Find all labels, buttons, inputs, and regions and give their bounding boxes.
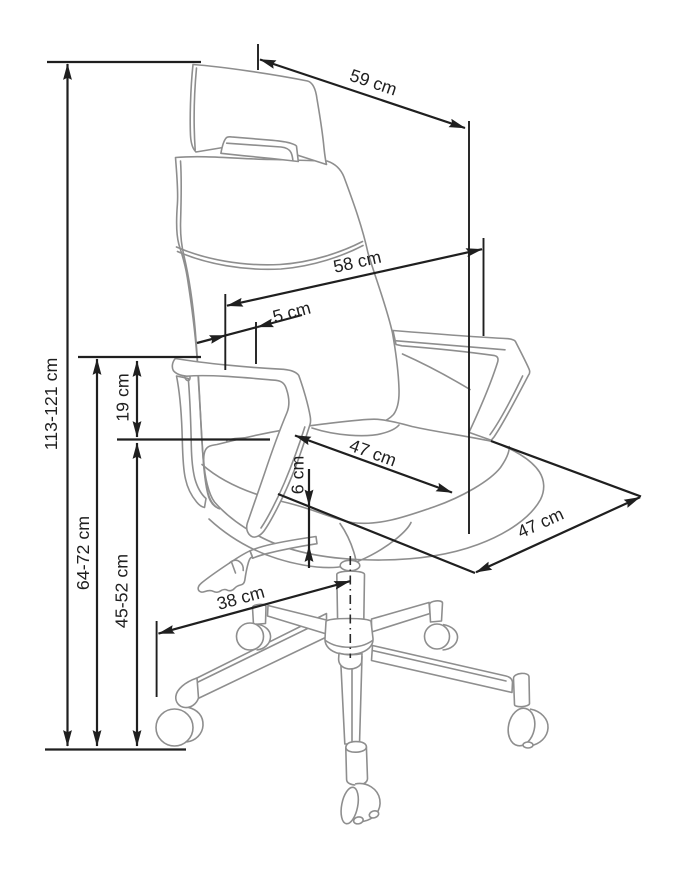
svg-text:6 cm: 6 cm	[288, 456, 308, 495]
svg-text:113-121 cm: 113-121 cm	[41, 358, 61, 451]
svg-text:45-52 cm: 45-52 cm	[112, 554, 132, 628]
svg-text:64-72 cm: 64-72 cm	[73, 516, 93, 590]
svg-text:19 cm: 19 cm	[113, 373, 133, 421]
svg-text:59 cm: 59 cm	[347, 65, 399, 99]
